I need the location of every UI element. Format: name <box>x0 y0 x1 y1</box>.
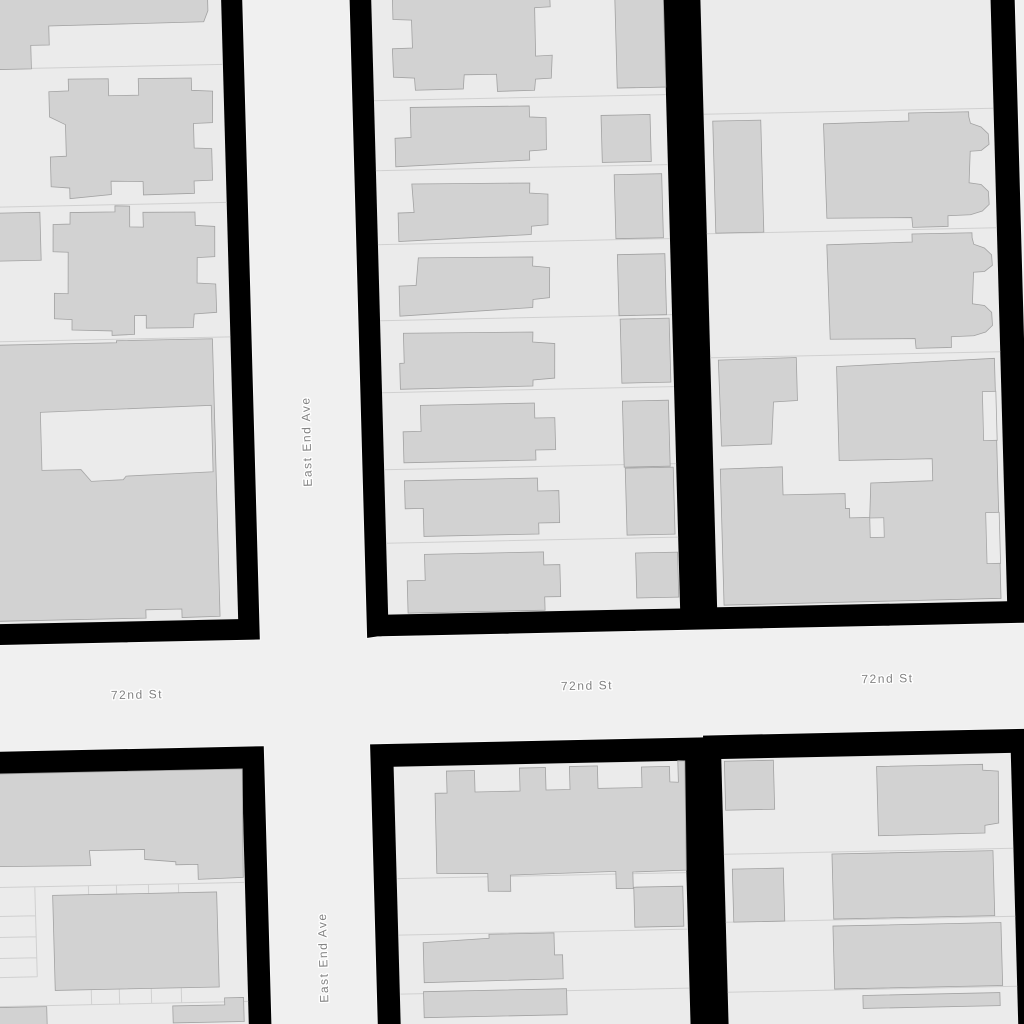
svg-text:East End Ave: East End Ave <box>298 396 315 487</box>
svg-text:72nd St: 72nd St <box>111 687 164 702</box>
svg-text:East End Ave: East End Ave <box>315 912 332 1003</box>
svg-text:72nd St: 72nd St <box>861 671 914 686</box>
svg-text:72nd St: 72nd St <box>561 678 614 693</box>
